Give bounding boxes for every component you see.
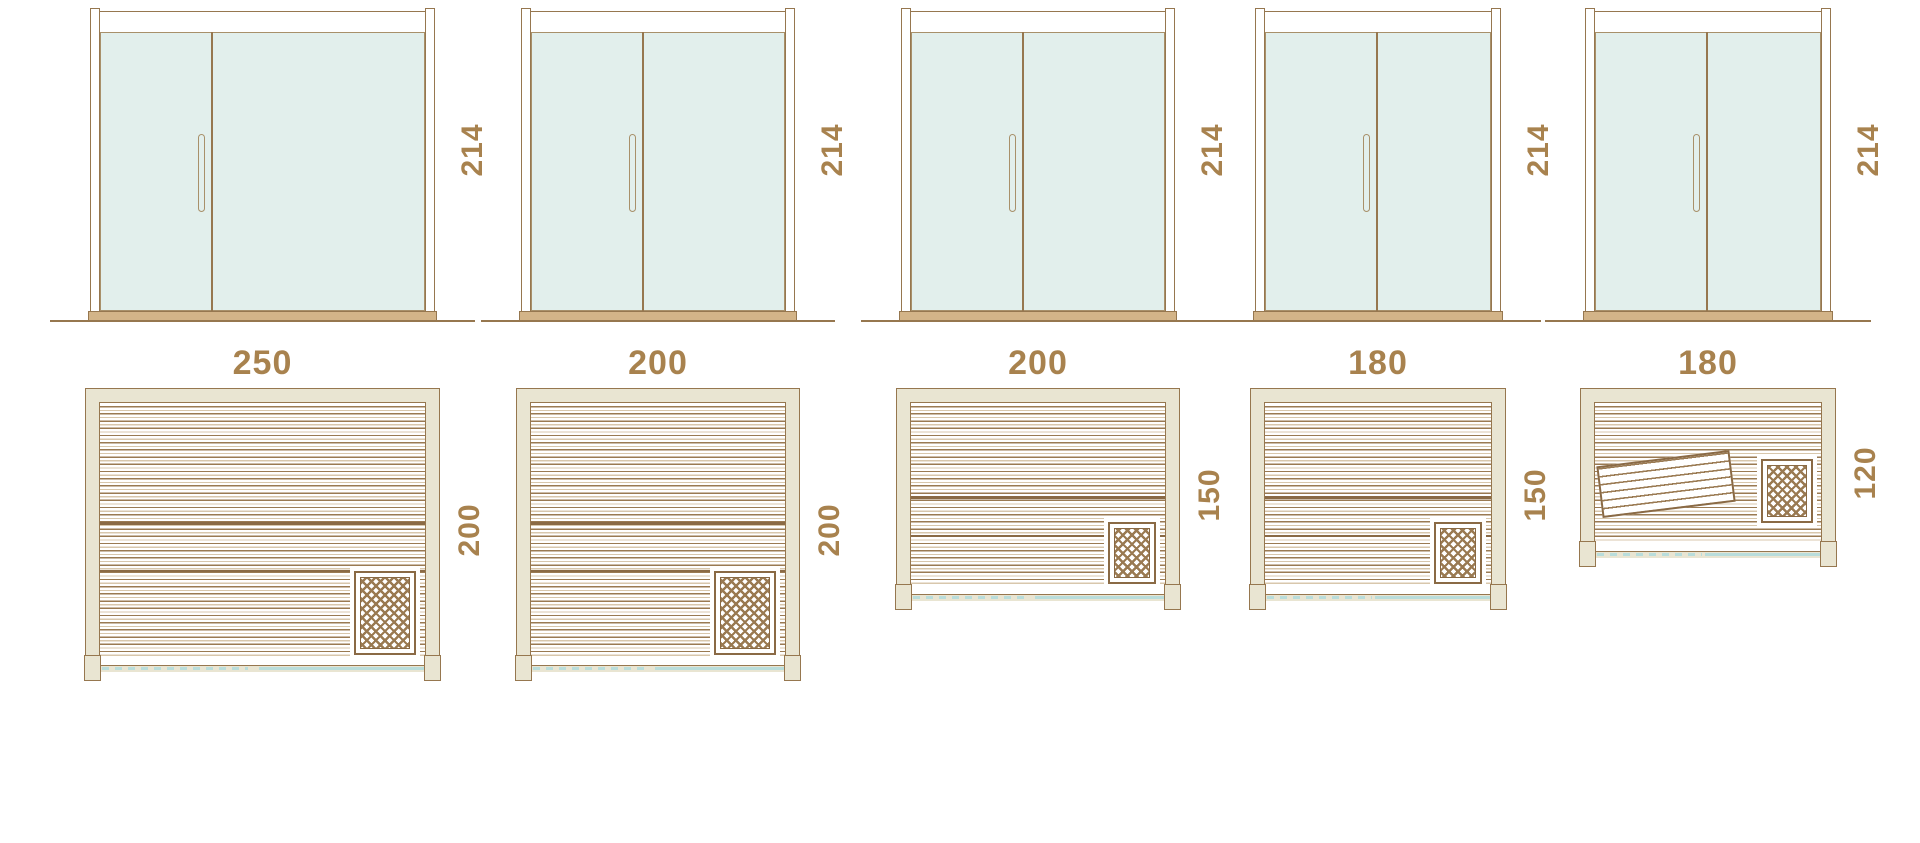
bench-edge-line (911, 496, 1165, 499)
door-post-left (521, 8, 531, 316)
door-post-right (1165, 8, 1175, 316)
door-header-beam (910, 11, 1166, 33)
bench-edge-line (100, 522, 425, 525)
door-panel-divider-line (1706, 32, 1708, 311)
plan-width-label: 180 (1250, 345, 1506, 383)
door-header-beam (1264, 11, 1492, 33)
floor-plan (516, 388, 800, 672)
glass-front-dashed-line (1597, 553, 1702, 556)
heater-lattice (720, 577, 770, 649)
heater-frame (1434, 522, 1482, 584)
plan-corner-foot-right (424, 655, 441, 681)
door-swing-group (1252, 601, 1412, 711)
heater-lattice (1114, 528, 1150, 578)
door-glass-left-panel (1595, 32, 1707, 311)
heater-frame (354, 571, 416, 655)
plan-width-label: 200 (516, 345, 800, 383)
door-header-beam (1594, 11, 1822, 33)
door-height-label: 214 (1521, 105, 1557, 195)
door-glass-left-panel (100, 32, 212, 311)
plan-corner-foot-right (1820, 541, 1837, 567)
floor-plan (896, 388, 1180, 601)
heater-lattice (1440, 528, 1476, 578)
heater-frame (1108, 522, 1156, 584)
glass-front-solid-line (1035, 596, 1164, 599)
door-header-beam (99, 11, 426, 33)
door-sill (899, 311, 1177, 321)
door-header-beam (530, 11, 786, 33)
door-swing-group (1582, 558, 1742, 668)
plan-corner-foot-right (1490, 584, 1507, 610)
heater-icon (1757, 455, 1817, 527)
plan-depth-label: 200 (812, 485, 848, 575)
door-height-label: 214 (1195, 105, 1231, 195)
door-post-left (90, 8, 100, 316)
door-height-label: 214 (815, 105, 851, 195)
door-post-left (901, 8, 911, 316)
heater-icon (350, 567, 420, 659)
door-handle-icon (1009, 134, 1016, 212)
heater-icon (1104, 518, 1160, 588)
floor-plan (1250, 388, 1506, 601)
plan-width-label: 250 (85, 345, 440, 383)
glass-front-solid-line (1375, 596, 1490, 599)
door-sill (1583, 311, 1833, 321)
plan-depth-label: 200 (452, 485, 488, 575)
glass-front-dashed-line (1267, 596, 1372, 599)
floor-plan (85, 388, 440, 672)
door-swing-group (898, 601, 1058, 711)
plan-interior (910, 402, 1166, 595)
plan-width-label: 180 (1580, 345, 1836, 383)
door-post-right (1491, 8, 1501, 316)
door-sill (1253, 311, 1503, 321)
door-post-right (785, 8, 795, 316)
plan-interior (530, 402, 786, 666)
heater-lattice (1767, 465, 1807, 517)
door-handle-icon (198, 134, 205, 212)
glass-front-solid-line (655, 667, 784, 670)
door-sill (519, 311, 797, 321)
door-handle-icon (629, 134, 636, 212)
door-panel-divider-line (1022, 32, 1024, 311)
bench-edge-line (531, 522, 785, 525)
door-glass-left-panel (911, 32, 1023, 311)
plan-depth-label: 150 (1518, 450, 1554, 540)
door-handle-icon (1363, 134, 1370, 212)
door-post-right (425, 8, 435, 316)
door-panel-divider-line (1376, 32, 1378, 311)
door-glass-right-panel (643, 32, 785, 311)
plan-corner-foot-right (784, 655, 801, 681)
glass-front-dashed-line (913, 596, 1029, 599)
glass-front-solid-line (1705, 553, 1820, 556)
heater-frame (1761, 459, 1813, 523)
bench-edge-line (1265, 496, 1491, 499)
floor-plan (1580, 388, 1836, 558)
door-glass-right-panel (212, 32, 425, 311)
door-panel-divider-line (642, 32, 644, 311)
sauna-comparison-diagram: 2142502002142002002142001502141801502141… (0, 0, 1920, 843)
door-glass-right-panel (1023, 32, 1165, 311)
door-height-label: 214 (1851, 105, 1887, 195)
plan-depth-label: 120 (1848, 428, 1884, 518)
door-glass-right-panel (1377, 32, 1491, 311)
heater-icon (1430, 518, 1486, 588)
capacity-figures-strip (0, 730, 1920, 843)
plan-interior (99, 402, 426, 666)
door-height-label: 214 (455, 105, 491, 195)
glass-front-solid-line (259, 667, 424, 670)
glass-front-dashed-line (102, 667, 248, 670)
glass-front-dashed-line (533, 667, 649, 670)
door-glass-right-panel (1707, 32, 1821, 311)
door-post-left (1585, 8, 1595, 316)
plan-width-label: 200 (896, 345, 1180, 383)
heater-lattice (360, 577, 410, 649)
door-handle-icon (1693, 134, 1700, 212)
door-glass-left-panel (1265, 32, 1377, 311)
door-post-left (1255, 8, 1265, 316)
door-panel-divider-line (211, 32, 213, 311)
door-glass-left-panel (531, 32, 643, 311)
plan-corner-foot-right (1164, 584, 1181, 610)
heater-frame (714, 571, 776, 655)
plan-interior (1594, 402, 1822, 552)
heater-icon (710, 567, 780, 659)
door-post-right (1821, 8, 1831, 316)
door-sill (88, 311, 437, 321)
plan-interior (1264, 402, 1492, 595)
plan-depth-label: 150 (1192, 450, 1228, 540)
